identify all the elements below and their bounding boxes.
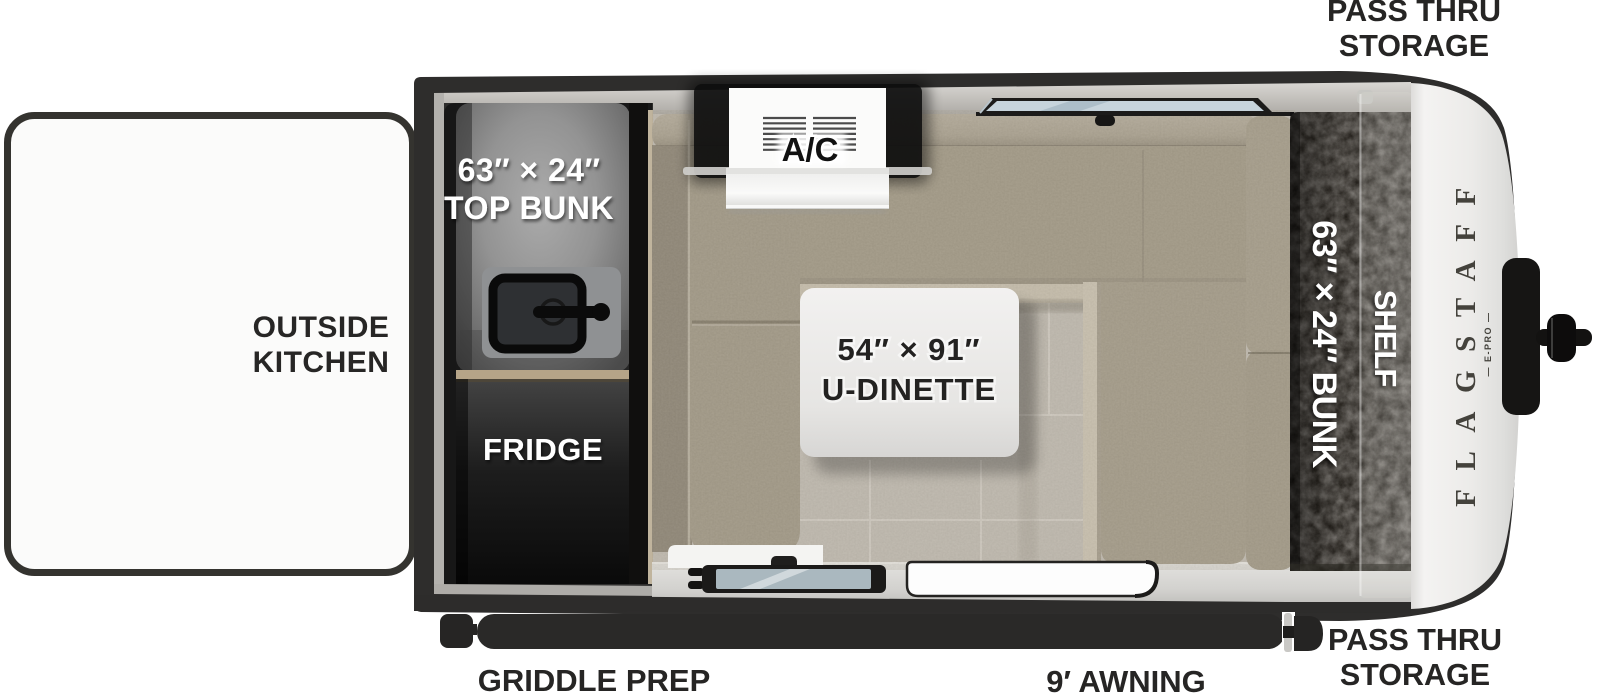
svg-text:9′ AWNING: 9′ AWNING (1046, 664, 1206, 693)
svg-text:63″ × 24″: 63″ × 24″ (458, 152, 601, 188)
svg-text:OUTSIDE: OUTSIDE (253, 311, 390, 344)
svg-text:FRIDGE: FRIDGE (483, 432, 603, 467)
svg-text:PASS THRU: PASS THRU (1328, 623, 1502, 657)
svg-text:TOP BUNK: TOP BUNK (444, 190, 614, 226)
svg-text:PASS THRU: PASS THRU (1327, 0, 1501, 28)
svg-text:— E-PRO —: — E-PRO — (1483, 311, 1493, 376)
svg-text:SHELF: SHELF (1368, 290, 1403, 387)
svg-text:STORAGE: STORAGE (1340, 658, 1490, 692)
svg-text:KITCHEN: KITCHEN (253, 346, 390, 379)
svg-text:54″ × 91″: 54″ × 91″ (838, 332, 981, 367)
svg-text:GRIDDLE PREP: GRIDDLE PREP (478, 663, 711, 693)
svg-text:U-DINETTE: U-DINETTE (822, 372, 996, 407)
svg-text:A/C: A/C (782, 131, 839, 168)
svg-text:63″ × 24″ BUNK: 63″ × 24″ BUNK (1305, 220, 1343, 469)
svg-text:FLAGSTAFF: FLAGSTAFF (1450, 169, 1482, 507)
svg-text:STORAGE: STORAGE (1339, 29, 1489, 63)
